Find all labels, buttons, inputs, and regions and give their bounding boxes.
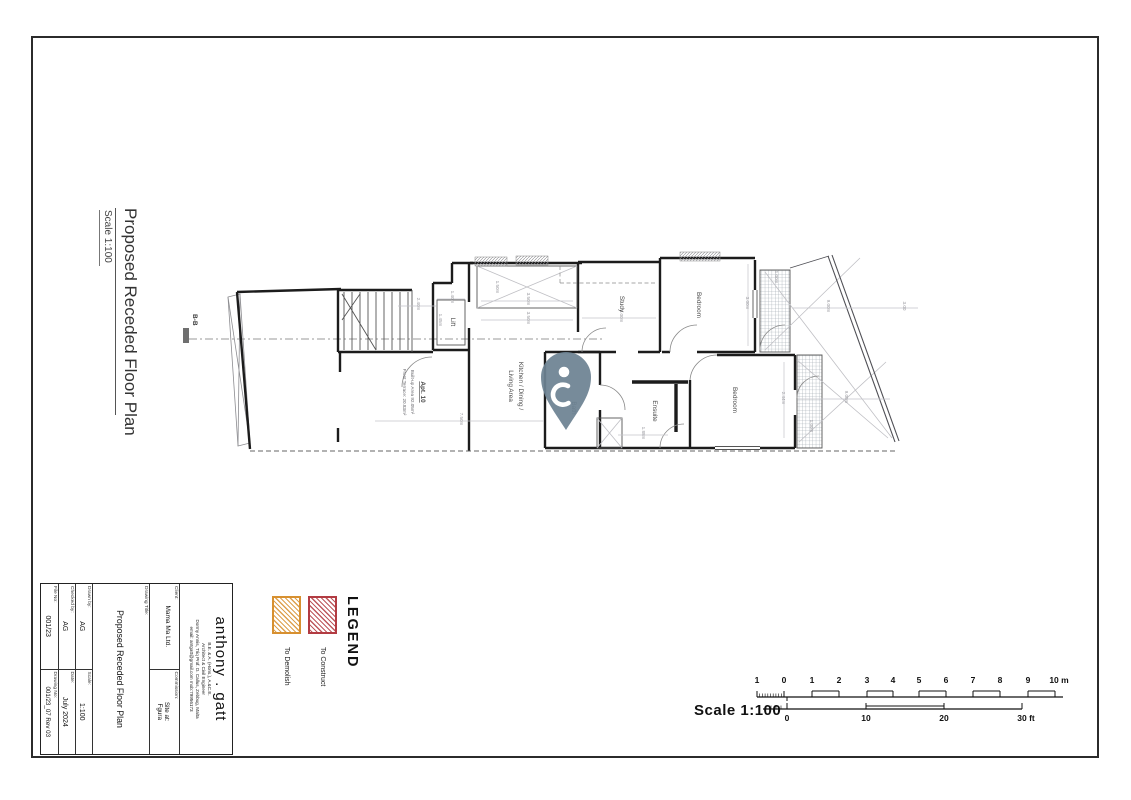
drawing-no-value: 001/23_07 Rev 03 [44, 670, 51, 755]
svg-text:3.00: 3.00 [902, 302, 907, 311]
page-scale-note: Scale 1:100 [99, 210, 113, 266]
svg-text:1.50m: 1.50m [495, 281, 500, 294]
location-pin-icon [537, 350, 595, 432]
drawn-by-cell: Drawn by: AG [76, 584, 92, 670]
svg-text:30 ft: 30 ft [1017, 713, 1035, 723]
apartment-area: Built-up Area 92.05m² [410, 370, 415, 415]
architect-address: Dormy Annis, Triq Prof. D. Callus, Zebbu… [194, 584, 200, 754]
svg-text:20: 20 [939, 713, 949, 723]
drawing-title-label: Drawing Title: [143, 586, 148, 615]
svg-text:5: 5 [917, 675, 922, 685]
commission-label: Commission: [173, 672, 178, 700]
legend-title: LEGEND [344, 596, 360, 720]
file-no-label: File No: [52, 586, 57, 603]
demolish-hatch-swatch [272, 596, 301, 634]
legend-item-demolish: To Demolish [272, 596, 301, 720]
checked-by-cell: Checked by: AG [59, 584, 75, 670]
svg-text:4: 4 [891, 675, 896, 685]
svg-text:0: 0 [782, 675, 787, 685]
commission-locality: Fgura [156, 670, 163, 755]
apartment-name: Apt. 10 [419, 381, 426, 403]
svg-text:8: 8 [998, 675, 1003, 685]
svg-text:3: 3 [865, 675, 870, 685]
room-label-bedroom-bottom: Bedroom [731, 387, 738, 413]
section-marker-label: B-B [191, 314, 198, 326]
room-label-bedroom-top: Bedroom [695, 292, 702, 318]
svg-text:1.00m: 1.00m [809, 420, 814, 433]
commission-site: Site at: [163, 670, 170, 755]
architect-credential: B.E. & A. (Hons.), A.&C.E. [206, 584, 212, 754]
dimension-labels: 2.40m 1.40m 1.45m 3.50m 3.50m 1.50m 7.50… [416, 271, 907, 440]
date-value: July 2024 [61, 670, 68, 755]
commission-cell: Commission: Site at: Fgura [150, 670, 179, 755]
drawn-by-label: Drawn by: [86, 586, 91, 608]
drawing-title-cell: Drawing Title: Proposed Receded Floor Pl… [92, 584, 149, 754]
architect-name: anthony . gatt [212, 584, 229, 754]
scale-bar: 1 0 1 2 3 4 5 6 7 8 9 10 m 0 10 20 30 ft [690, 668, 1100, 728]
date-label: Date: [69, 672, 74, 683]
svg-text:1: 1 [755, 675, 760, 685]
svg-text:1.40m: 1.40m [450, 291, 455, 304]
drawing-title-value: Proposed Receded Floor Plan [115, 584, 125, 754]
svg-text:3.50m: 3.50m [526, 312, 531, 325]
legend: LEGEND To Construct To Demolish [255, 596, 360, 720]
scale-label: Scale: [86, 672, 91, 685]
svg-text:7.50m: 7.50m [459, 413, 464, 426]
construct-label: To Construct [319, 647, 326, 686]
client-cell: Client: Mama Ma Ltd. [150, 584, 179, 670]
section-line: B-B [183, 314, 605, 343]
client-label: Client: [173, 586, 178, 600]
walls [237, 258, 795, 451]
file-no-cell: File No: 001/23 [41, 584, 58, 670]
construct-hatch-swatch [308, 596, 337, 634]
legend-item-construct: To Construct [308, 596, 337, 720]
file-no-value: 001/23 [44, 584, 51, 669]
drawing-no-cell: Drawing No: 001/23_07 Rev 03 [41, 670, 58, 755]
svg-text:3.00m: 3.00m [745, 297, 750, 310]
architect-profession: Architect & Civil Engineer [200, 584, 206, 754]
scale-cell: Scale: 1:100 [76, 670, 92, 755]
svg-text:2.44m: 2.44m [781, 392, 786, 405]
door-arcs [402, 325, 819, 448]
svg-text:3.50m: 3.50m [526, 293, 531, 306]
svg-text:1.00m: 1.00m [774, 271, 779, 284]
apartment-terrace: Front Terrace: 20.83m² [402, 369, 407, 416]
page-title: Proposed Receded Floor Plan [115, 208, 140, 415]
drawing-no-label: Drawing No: [52, 672, 57, 698]
client-value: Mama Ma Ltd. [164, 584, 171, 669]
date-cell: Date: July 2024 [59, 670, 75, 755]
svg-text:1.88m: 1.88m [641, 427, 646, 440]
architect-cell: anthony . gatt B.E. & A. (Hons.), A.&C.E… [179, 584, 232, 754]
demolish-label: To Demolish [283, 647, 290, 686]
svg-text:1: 1 [810, 675, 815, 685]
svg-text:9: 9 [1026, 675, 1031, 685]
svg-text:9.00m: 9.00m [826, 300, 831, 313]
checked-by-label: Checked by: [69, 586, 74, 613]
svg-text:2.40m: 2.40m [416, 298, 421, 311]
apartment-annotation: Apt. 10 Built-up Area 92.05m² Front Terr… [402, 369, 426, 416]
architect-contact: email: antgatt@gmail.com mob:79956173 [188, 584, 194, 754]
scalebar-meter-labels: 1 0 1 2 3 4 5 6 7 8 9 10 m [755, 675, 1069, 685]
room-label-kitchen-2: Living Area [507, 370, 514, 402]
svg-text:10: 10 [861, 713, 871, 723]
svg-text:7: 7 [971, 675, 976, 685]
title-block: anthony . gatt B.E. & A. (Hons.), A.&C.E… [40, 583, 233, 755]
checked-by-value: AG [61, 584, 68, 669]
drawn-by-value: AG [78, 584, 85, 669]
svg-text:10 m: 10 m [1049, 675, 1069, 685]
svg-text:2: 2 [837, 675, 842, 685]
svg-text:1.45m: 1.45m [438, 314, 443, 327]
room-label-ensuite: Ensuite [651, 400, 658, 422]
room-label-study: Study [618, 296, 625, 313]
scalebar-feet-labels: 0 10 20 30 ft [785, 713, 1035, 723]
room-label-kitchen-1: Kitchen / Dining / [517, 362, 524, 411]
svg-text:0: 0 [785, 713, 790, 723]
scale-value: 1:100 [78, 670, 85, 755]
room-label-lift: Lift [449, 318, 456, 327]
svg-text:9.00m: 9.00m [844, 391, 849, 404]
svg-text:6: 6 [944, 675, 949, 685]
